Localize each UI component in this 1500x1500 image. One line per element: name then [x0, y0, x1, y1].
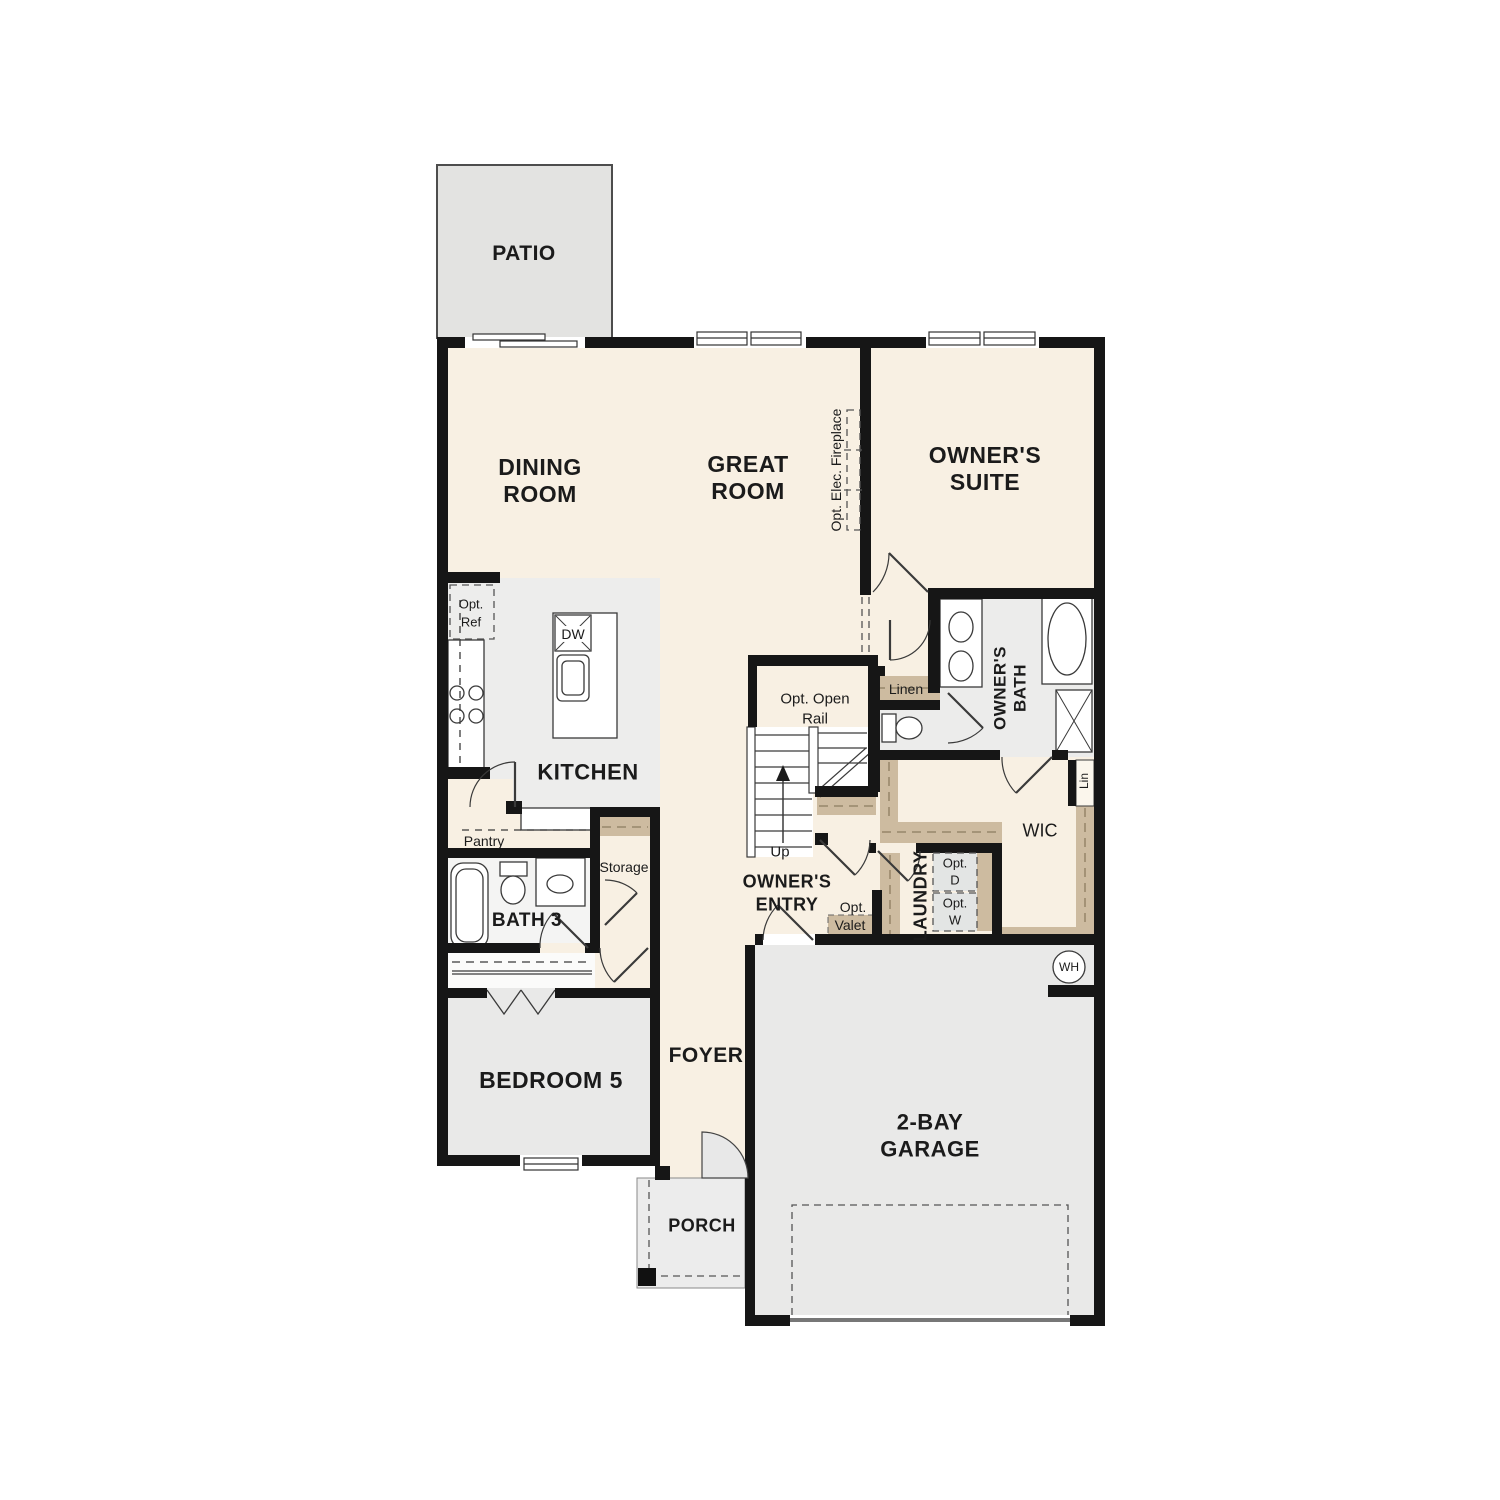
kitchen-cabinet [521, 808, 598, 830]
label-opt-open-rail-2: Rail [802, 710, 828, 727]
label-opt-d-2: D [950, 874, 959, 889]
label-great-1: GREAT [707, 451, 788, 477]
toilet-bowl [501, 876, 525, 904]
label-wh: WH [1059, 961, 1079, 975]
stair-run-right [818, 727, 868, 791]
label-suite-2: SUITE [950, 469, 1020, 495]
label-storage: Storage [599, 859, 648, 875]
stair-rail [809, 727, 818, 793]
label-opt-open-rail-1: Opt. Open [780, 690, 849, 707]
sink-icon [547, 875, 573, 893]
label-dining-2: ROOM [503, 481, 577, 507]
burner-icon [450, 686, 464, 700]
tub-bowl [1048, 603, 1086, 675]
label-kitchen: KITCHEN [537, 759, 638, 784]
label-opt-ref-2: Ref [461, 616, 481, 631]
label-opt-d-1: Opt. [943, 857, 968, 872]
label-opt-w-2: W [949, 914, 961, 929]
label-owners-bath-1: OWNER'S [990, 646, 1010, 730]
sink-icon [949, 651, 973, 681]
label-bedroom5: BEDROOM 5 [479, 1067, 623, 1093]
kitchen-counter [448, 640, 484, 770]
floor-plan-drawing [0, 0, 1500, 1500]
label-porch: PORCH [668, 1216, 736, 1237]
label-dining-1: DINING [498, 454, 582, 480]
laundry-counter [977, 853, 992, 931]
label-up: Up [770, 843, 789, 860]
label-wic: WIC [1023, 821, 1058, 842]
label-owners-bath-2: BATH [1010, 646, 1030, 730]
burner-icon [469, 686, 483, 700]
label-opt-ref-1: Opt. [459, 598, 484, 613]
label-owners-entry-2: ENTRY [756, 895, 819, 916]
toilet-tank [882, 714, 896, 742]
patio-slider-panel [500, 341, 577, 347]
burner-icon [469, 709, 483, 723]
label-garage-1: 2-BAY [897, 1109, 964, 1134]
burner-icon [450, 709, 464, 723]
label-opt-valet-2: Valet [835, 917, 866, 933]
porch-column [638, 1268, 656, 1286]
label-opt-valet-1: Opt. [840, 899, 866, 915]
island-sink-bowl [562, 661, 584, 695]
label-garage-2: GARAGE [880, 1136, 980, 1161]
stair-rail [747, 727, 755, 857]
label-opt-w-1: Opt. [943, 897, 968, 912]
toilet-tank [500, 862, 527, 876]
label-great-2: ROOM [711, 478, 785, 504]
label-foyer: FOYER [669, 1044, 744, 1068]
sink-icon [949, 612, 973, 642]
label-owners-entry-1: OWNER'S [743, 872, 832, 893]
label-lin: Lin [1078, 773, 1092, 789]
floor-plan: PATIO DINING ROOM GREAT ROOM OWNER'S SUI… [0, 0, 1500, 1500]
label-pantry: Pantry [464, 833, 504, 849]
patio-slider-panel [473, 334, 545, 340]
label-linen: Linen [889, 681, 923, 697]
label-dw: DW [559, 626, 586, 642]
label-suite-1: OWNER'S [929, 442, 1041, 468]
label-laundry: LAUNDRY [911, 851, 932, 942]
toilet-bowl [896, 717, 922, 739]
label-patio: PATIO [492, 242, 556, 266]
label-owners-bath: OWNER'S BATH [990, 646, 1029, 730]
label-fireplace: Opt. Elec. Fireplace [828, 409, 844, 532]
label-bath3: BATH 3 [492, 910, 562, 932]
stair-run-left [750, 727, 813, 857]
